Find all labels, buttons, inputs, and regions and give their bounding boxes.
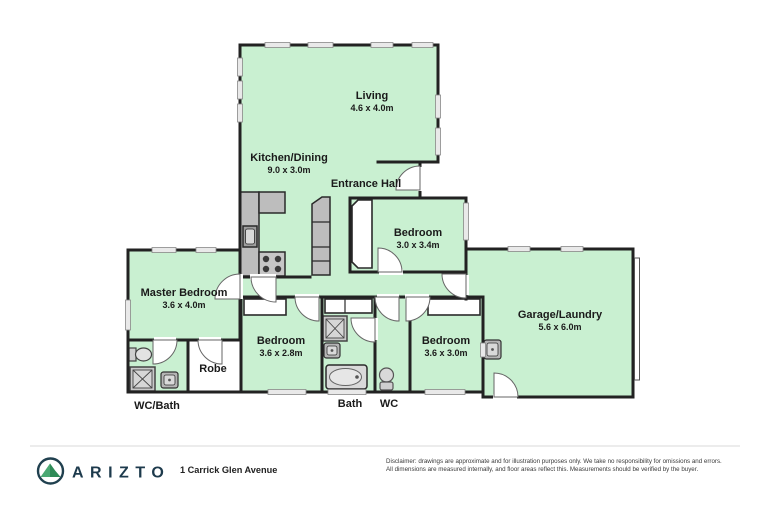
- label-wc-bath: WC/Bath: [134, 400, 180, 412]
- disclaimer-line-1: Disclaimer: drawings are approximate and…: [386, 458, 722, 465]
- shower-bath-icon: [323, 316, 347, 341]
- label-bedroom-mid: Bedroom: [257, 335, 306, 347]
- bathtub-icon: [326, 365, 367, 389]
- pantry-column-icon: [312, 197, 330, 275]
- floorplan-page: Living 4.6 x 4.0m Kitchen/Dining 9.0 x 3…: [0, 0, 768, 512]
- basin-wcbath-icon: [161, 372, 178, 388]
- dims-bedroom-right: 3.6 x 3.0m: [424, 348, 467, 358]
- garage-door-icon: [635, 258, 640, 380]
- linen-cupboard-icon: [325, 299, 372, 313]
- wardrobe-bedroom-top-icon: [352, 200, 372, 268]
- toilet-wcbath-icon: [129, 348, 152, 361]
- kitchen-counter-top-icon: [259, 192, 285, 213]
- property-address: 1 Carrick Glen Avenue: [180, 465, 277, 475]
- label-master-bedroom: Master Bedroom: [141, 287, 228, 299]
- label-bath: Bath: [338, 398, 363, 410]
- dims-master-bedroom: 3.6 x 4.0m: [162, 300, 205, 310]
- label-entrance-hall: Entrance Hall: [331, 178, 401, 190]
- floorplan-svg: Living 4.6 x 4.0m Kitchen/Dining 9.0 x 3…: [0, 0, 768, 512]
- kitchen-sink-bowl-icon: [246, 229, 255, 244]
- laundry-tub-icon: [484, 340, 501, 359]
- toilet-wc-icon: [380, 368, 394, 390]
- label-bedroom-top: Bedroom: [394, 227, 443, 239]
- shower-wcbath-icon: [130, 367, 155, 391]
- label-kitchen-dining: Kitchen/Dining: [250, 152, 328, 164]
- stove-icon: [259, 252, 285, 276]
- dims-garage-laundry: 5.6 x 6.0m: [538, 322, 581, 332]
- dims-kitchen-dining: 9.0 x 3.0m: [267, 165, 310, 175]
- label-garage-laundry: Garage/Laundry: [518, 309, 603, 321]
- wardrobe-bedroom-right-icon: [428, 299, 480, 315]
- wardrobe-bedroom-mid-icon: [244, 299, 286, 315]
- arizto-logo-icon: [38, 459, 63, 484]
- label-living: Living: [356, 90, 388, 102]
- brand-name: ARIZTO: [72, 465, 170, 482]
- dims-bedroom-top: 3.0 x 3.4m: [396, 240, 439, 250]
- dims-living: 4.6 x 4.0m: [350, 103, 393, 113]
- basin-bath-icon: [324, 343, 340, 358]
- disclaimer-line-2: All dimensions are measured internally, …: [386, 466, 698, 473]
- label-robe: Robe: [199, 363, 227, 375]
- footer: ARIZTO 1 Carrick Glen Avenue Disclaimer:…: [30, 446, 740, 484]
- label-bedroom-right: Bedroom: [422, 335, 471, 347]
- dims-bedroom-mid: 3.6 x 2.8m: [259, 348, 302, 358]
- label-wc: WC: [380, 398, 398, 410]
